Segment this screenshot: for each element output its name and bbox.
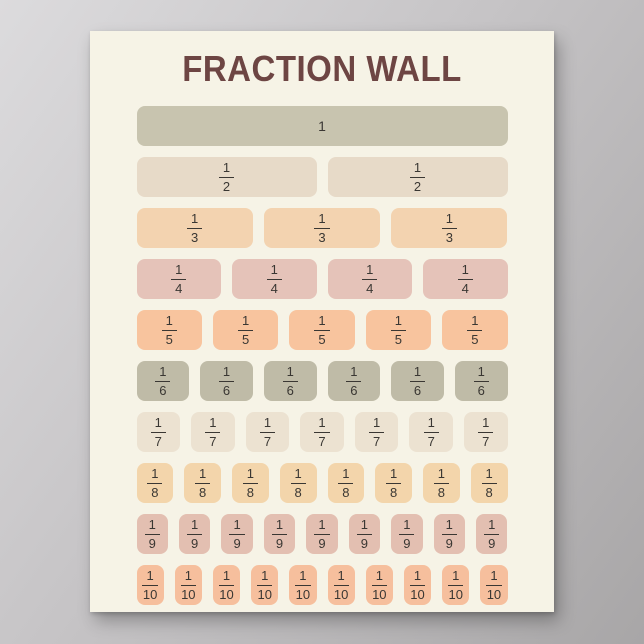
fraction-bar-1-6: 16 [455, 361, 508, 401]
fraction-label: 19 [187, 518, 202, 550]
fraction-bar-1-9: 19 [476, 514, 507, 554]
fraction-denominator: 10 [410, 586, 425, 602]
fraction-row-halves: 1212 [137, 157, 508, 197]
scene-background: FRACTION WALL 11212131313141414141515151… [0, 0, 644, 644]
fraction-denominator: 10 [334, 586, 349, 602]
fraction-bar-1-4: 14 [232, 259, 317, 299]
fraction-bar-1-7: 17 [137, 412, 181, 452]
fraction-bar-1-10: 110 [213, 565, 240, 605]
fraction-bar-1-9: 19 [306, 514, 337, 554]
fraction-numerator: 1 [346, 365, 361, 382]
fraction-numerator: 1 [257, 569, 272, 586]
fraction-numerator: 1 [187, 212, 202, 229]
fraction-numerator: 1 [205, 416, 220, 433]
fraction-denominator: 7 [260, 433, 275, 449]
fraction-numerator: 1 [434, 467, 449, 484]
fraction-denominator: 5 [238, 331, 253, 347]
fraction-denominator: 6 [410, 382, 425, 398]
fraction-denominator: 7 [205, 433, 220, 449]
fraction-numerator: 1 [314, 314, 329, 331]
fraction-bar-1-5: 15 [213, 310, 278, 350]
fraction-denominator: 4 [171, 280, 186, 296]
fraction-denominator: 7 [151, 433, 166, 449]
fraction-bar-1-9: 19 [221, 514, 252, 554]
fraction-denominator: 9 [229, 535, 244, 551]
fraction-label: 19 [314, 518, 329, 550]
fraction-denominator: 10 [257, 586, 272, 602]
fraction-bar-1-10: 110 [137, 565, 164, 605]
fraction-numerator: 1 [272, 518, 287, 535]
whole-number-label: 1 [318, 119, 326, 133]
fraction-bar-1-4: 14 [137, 259, 222, 299]
fraction-denominator: 6 [474, 382, 489, 398]
fraction-label: 17 [478, 416, 493, 448]
fraction-numerator: 1 [181, 569, 196, 586]
fraction-denominator: 10 [372, 586, 387, 602]
fraction-numerator: 1 [369, 416, 384, 433]
fraction-label: 110 [142, 569, 157, 601]
fraction-bar-1-6: 16 [391, 361, 444, 401]
fraction-denominator: 9 [272, 535, 287, 551]
fraction-numerator: 1 [357, 518, 372, 535]
fraction-bar-1-8: 18 [423, 463, 460, 503]
fraction-label: 110 [257, 569, 272, 601]
fraction-label: 15 [238, 314, 253, 346]
fraction-label: 110 [181, 569, 196, 601]
fraction-bar-1-5: 15 [366, 310, 431, 350]
fraction-numerator: 1 [314, 416, 329, 433]
fraction-numerator: 1 [482, 467, 497, 484]
fraction-bar-1-6: 16 [137, 361, 190, 401]
fraction-bar-1-7: 17 [464, 412, 508, 452]
fraction-denominator: 8 [291, 484, 306, 500]
fraction-bar-1-10: 110 [366, 565, 393, 605]
fraction-numerator: 1 [391, 314, 406, 331]
fraction-label: 15 [162, 314, 177, 346]
fraction-numerator: 1 [410, 569, 425, 586]
fraction-denominator: 10 [181, 586, 196, 602]
fraction-bar-1-9: 19 [137, 514, 168, 554]
fraction-numerator: 1 [229, 518, 244, 535]
fraction-denominator: 3 [187, 229, 202, 245]
fraction-numerator: 1 [386, 467, 401, 484]
fraction-denominator: 4 [458, 280, 473, 296]
fraction-label: 17 [424, 416, 439, 448]
fraction-label: 14 [267, 263, 282, 295]
fraction-bar-1-6: 16 [200, 361, 253, 401]
fraction-bar-1-9: 19 [434, 514, 465, 554]
fraction-bar-1-10: 110 [251, 565, 278, 605]
fraction-label: 14 [362, 263, 377, 295]
fraction-numerator: 1 [372, 569, 387, 586]
fraction-denominator: 5 [391, 331, 406, 347]
fraction-bar-1-8: 18 [232, 463, 269, 503]
fraction-label: 18 [386, 467, 401, 499]
fraction-bar-1-2: 12 [328, 157, 508, 197]
fraction-label: 19 [145, 518, 160, 550]
fraction-label: 13 [442, 212, 457, 244]
fraction-numerator: 1 [151, 416, 166, 433]
fraction-numerator: 1 [458, 263, 473, 280]
fraction-label: 18 [291, 467, 306, 499]
fraction-numerator: 1 [338, 467, 353, 484]
fraction-denominator: 2 [219, 178, 234, 194]
fraction-label: 18 [147, 467, 162, 499]
fraction-denominator: 5 [314, 331, 329, 347]
fraction-label: 18 [195, 467, 210, 499]
fraction-label: 110 [448, 569, 463, 601]
fraction-label: 19 [357, 518, 372, 550]
fraction-bar-1-9: 19 [349, 514, 380, 554]
fraction-denominator: 5 [467, 331, 482, 347]
fraction-bar-1-7: 17 [246, 412, 290, 452]
fraction-denominator: 10 [219, 586, 234, 602]
fraction-label: 15 [467, 314, 482, 346]
fraction-denominator: 5 [162, 331, 177, 347]
fraction-denominator: 8 [434, 484, 449, 500]
fraction-denominator: 7 [424, 433, 439, 449]
fraction-denominator: 4 [267, 280, 282, 296]
fraction-bar-1-10: 110 [289, 565, 316, 605]
fraction-label: 18 [338, 467, 353, 499]
fraction-numerator: 1 [478, 416, 493, 433]
fraction-bar-whole: 1 [137, 106, 508, 146]
fraction-bar-1-6: 16 [264, 361, 317, 401]
fraction-denominator: 8 [147, 484, 162, 500]
fraction-denominator: 10 [142, 586, 157, 602]
fraction-bar-1-4: 14 [328, 259, 413, 299]
fraction-denominator: 8 [386, 484, 401, 500]
fraction-denominator: 8 [195, 484, 210, 500]
fraction-denominator: 9 [145, 535, 160, 551]
fraction-label: 18 [482, 467, 497, 499]
fraction-label: 17 [151, 416, 166, 448]
fraction-numerator: 1 [291, 467, 306, 484]
fraction-numerator: 1 [362, 263, 377, 280]
fraction-denominator: 9 [442, 535, 457, 551]
fraction-numerator: 1 [295, 569, 310, 586]
fraction-numerator: 1 [260, 416, 275, 433]
fraction-denominator: 6 [346, 382, 361, 398]
fraction-numerator: 1 [448, 569, 463, 586]
fraction-bar-1-5: 15 [137, 310, 202, 350]
fraction-label: 110 [295, 569, 310, 601]
fraction-numerator: 1 [147, 467, 162, 484]
fraction-wall-poster: FRACTION WALL 11212131313141414141515151… [90, 31, 554, 612]
fraction-denominator: 7 [369, 433, 384, 449]
fraction-label: 110 [334, 569, 349, 601]
fraction-label: 19 [484, 518, 499, 550]
fraction-label: 15 [391, 314, 406, 346]
fraction-bar-1-8: 18 [328, 463, 365, 503]
fraction-label: 16 [346, 365, 361, 397]
fraction-label: 19 [399, 518, 414, 550]
fraction-denominator: 6 [283, 382, 298, 398]
fraction-denominator: 10 [295, 586, 310, 602]
fraction-label: 12 [219, 161, 234, 193]
fraction-numerator: 1 [314, 518, 329, 535]
fraction-numerator: 1 [486, 569, 501, 586]
fraction-bar-1-2: 12 [137, 157, 317, 197]
fraction-denominator: 8 [243, 484, 258, 500]
fraction-label: 17 [314, 416, 329, 448]
fraction-bar-1-10: 110 [480, 565, 507, 605]
fraction-numerator: 1 [219, 365, 234, 382]
fraction-bar-1-8: 18 [137, 463, 174, 503]
fraction-denominator: 9 [357, 535, 372, 551]
fraction-bar-1-10: 110 [175, 565, 202, 605]
fraction-numerator: 1 [410, 161, 425, 178]
fraction-row-ninths: 191919191919191919 [137, 514, 508, 554]
fraction-label: 18 [243, 467, 258, 499]
fraction-bar-1-10: 110 [328, 565, 355, 605]
fraction-numerator: 1 [142, 569, 157, 586]
fraction-bar-1-6: 16 [328, 361, 381, 401]
fraction-bar-1-8: 18 [471, 463, 508, 503]
fraction-numerator: 1 [187, 518, 202, 535]
fraction-label: 110 [410, 569, 425, 601]
fraction-bar-1-5: 15 [289, 310, 354, 350]
fraction-bar-1-7: 17 [300, 412, 344, 452]
fraction-bar-1-8: 18 [280, 463, 317, 503]
fraction-label: 17 [205, 416, 220, 448]
fraction-bar-1-7: 17 [191, 412, 235, 452]
fraction-denominator: 9 [399, 535, 414, 551]
fraction-label: 16 [474, 365, 489, 397]
fraction-bar-1-8: 18 [375, 463, 412, 503]
fraction-label: 17 [260, 416, 275, 448]
fraction-label: 14 [458, 263, 473, 295]
fraction-denominator: 9 [484, 535, 499, 551]
fraction-denominator: 10 [486, 586, 501, 602]
fraction-denominator: 2 [410, 178, 425, 194]
fraction-row-sixths: 161616161616 [137, 361, 508, 401]
fraction-numerator: 1 [243, 467, 258, 484]
fraction-numerator: 1 [267, 263, 282, 280]
fraction-numerator: 1 [424, 416, 439, 433]
fraction-row-tenths: 110110110110110110110110110110 [137, 565, 508, 605]
fraction-denominator: 3 [314, 229, 329, 245]
fraction-label: 16 [283, 365, 298, 397]
fraction-label: 19 [229, 518, 244, 550]
fraction-numerator: 1 [219, 569, 234, 586]
fraction-row-whole: 1 [137, 106, 508, 146]
fraction-bar-1-5: 15 [442, 310, 507, 350]
fraction-label: 16 [219, 365, 234, 397]
fraction-denominator: 7 [478, 433, 493, 449]
fraction-label: 12 [410, 161, 425, 193]
fraction-numerator: 1 [410, 365, 425, 382]
fraction-numerator: 1 [442, 518, 457, 535]
fraction-denominator: 9 [314, 535, 329, 551]
fraction-bar-1-9: 19 [179, 514, 210, 554]
fraction-row-quarters: 14141414 [137, 259, 508, 299]
fraction-bar-1-3: 13 [391, 208, 507, 248]
fraction-bar-1-3: 13 [264, 208, 380, 248]
fraction-numerator: 1 [474, 365, 489, 382]
fraction-label: 19 [442, 518, 457, 550]
fraction-numerator: 1 [238, 314, 253, 331]
fraction-numerator: 1 [155, 365, 170, 382]
fraction-numerator: 1 [145, 518, 160, 535]
fraction-label: 17 [369, 416, 384, 448]
fraction-label: 13 [187, 212, 202, 244]
fraction-bar-1-7: 17 [409, 412, 453, 452]
fraction-numerator: 1 [283, 365, 298, 382]
fraction-numerator: 1 [334, 569, 349, 586]
fraction-row-thirds: 131313 [137, 208, 508, 248]
fraction-denominator: 8 [338, 484, 353, 500]
fraction-denominator: 3 [442, 229, 457, 245]
fraction-denominator: 7 [314, 433, 329, 449]
fraction-numerator: 1 [467, 314, 482, 331]
fraction-row-sevenths: 17171717171717 [137, 412, 508, 452]
fraction-numerator: 1 [162, 314, 177, 331]
fraction-bar-1-3: 13 [137, 208, 253, 248]
fraction-label: 110 [486, 569, 501, 601]
fraction-denominator: 10 [448, 586, 463, 602]
fraction-label: 16 [155, 365, 170, 397]
fraction-label: 15 [314, 314, 329, 346]
fraction-denominator: 4 [362, 280, 377, 296]
fraction-numerator: 1 [484, 518, 499, 535]
fraction-bar-1-9: 19 [391, 514, 422, 554]
fraction-row-eighths: 1818181818181818 [137, 463, 508, 503]
fraction-bar-1-10: 110 [442, 565, 469, 605]
fraction-label: 110 [219, 569, 234, 601]
fraction-bar-1-9: 19 [264, 514, 295, 554]
fraction-label: 16 [410, 365, 425, 397]
fraction-numerator: 1 [442, 212, 457, 229]
fraction-denominator: 9 [187, 535, 202, 551]
fraction-bar-1-4: 14 [423, 259, 508, 299]
fraction-row-fifths: 1515151515 [137, 310, 508, 350]
poster-title: FRACTION WALL [90, 48, 554, 90]
fraction-label: 110 [372, 569, 387, 601]
fraction-numerator: 1 [314, 212, 329, 229]
fraction-denominator: 8 [482, 484, 497, 500]
fraction-bar-1-10: 110 [404, 565, 431, 605]
fraction-bar-1-8: 18 [184, 463, 221, 503]
fraction-label: 14 [171, 263, 186, 295]
fraction-label: 19 [272, 518, 287, 550]
fraction-denominator: 6 [155, 382, 170, 398]
fraction-numerator: 1 [195, 467, 210, 484]
fraction-denominator: 6 [219, 382, 234, 398]
fraction-numerator: 1 [219, 161, 234, 178]
fraction-bar-1-7: 17 [355, 412, 399, 452]
fraction-numerator: 1 [399, 518, 414, 535]
fraction-wall: 1121213131314141414151515151516161616161… [137, 106, 508, 605]
fraction-numerator: 1 [171, 263, 186, 280]
fraction-label: 13 [314, 212, 329, 244]
fraction-label: 18 [434, 467, 449, 499]
